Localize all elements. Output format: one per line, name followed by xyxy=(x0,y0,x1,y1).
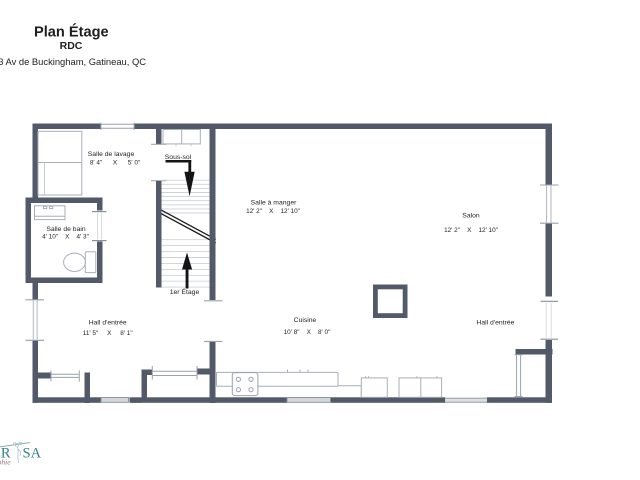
svg-text:73 Av de Buckingham, Gatineau,: 73 Av de Buckingham, Gatineau, QC xyxy=(0,56,146,67)
svg-text:Plan Étage: Plan Étage xyxy=(34,24,109,41)
svg-text:RDC: RDC xyxy=(60,40,83,52)
svg-text:Cuisine: Cuisine xyxy=(294,317,317,324)
svg-text:8' 4" X 5' 0": 8' 4" X 5' 0" xyxy=(90,160,140,167)
svg-text:raphie: raphie xyxy=(0,458,11,467)
svg-text:Salle de bain: Salle de bain xyxy=(46,226,86,233)
svg-text:Salon: Salon xyxy=(462,212,480,219)
svg-text:Hall d'entrée: Hall d'entrée xyxy=(476,319,514,326)
svg-text:Hall d'entrée: Hall d'entrée xyxy=(89,320,127,327)
svg-text:1er Étage: 1er Étage xyxy=(170,287,200,296)
svg-text:Sous-sol: Sous-sol xyxy=(165,154,192,161)
svg-text:12' 2" X 12' 10": 12' 2" X 12' 10" xyxy=(444,227,498,234)
svg-text:Salle de lavage: Salle de lavage xyxy=(88,151,135,158)
svg-text:SA: SA xyxy=(23,446,42,462)
svg-text:10' 8" X 8' 0": 10' 8" X 8' 0" xyxy=(284,329,331,336)
svg-text:Salle à manger: Salle à manger xyxy=(251,200,297,207)
svg-text:4' 10" X 4' 3": 4' 10" X 4' 3" xyxy=(42,234,89,241)
svg-text:12' 2" X 12' 10": 12' 2" X 12' 10" xyxy=(246,208,300,215)
svg-text:11' 5" X 8' 1": 11' 5" X 8' 1" xyxy=(83,330,133,337)
